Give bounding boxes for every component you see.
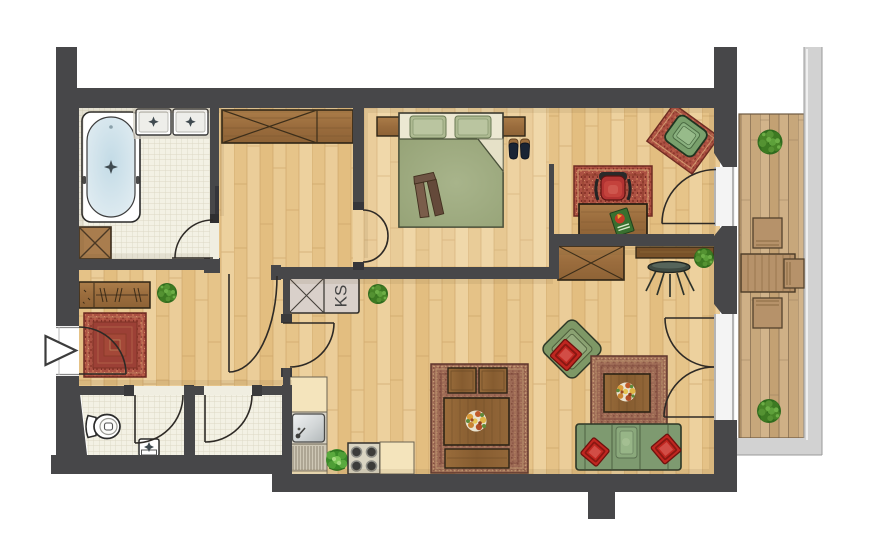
svg-text:KS: KS bbox=[332, 285, 351, 308]
